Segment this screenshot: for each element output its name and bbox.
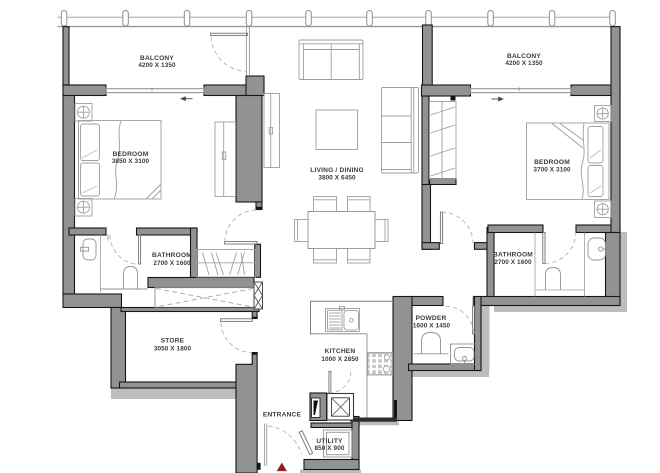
- svg-text:3850 X 3100: 3850 X 3100: [112, 158, 150, 165]
- svg-text:2700 X 1600: 2700 X 1600: [494, 259, 532, 266]
- svg-text:2700 X 1600: 2700 X 1600: [153, 260, 191, 267]
- svg-text:4200 X 1350: 4200 X 1350: [138, 62, 176, 69]
- svg-text:850 X 900: 850 X 900: [314, 445, 344, 452]
- svg-text:BATHROOM: BATHROOM: [152, 252, 192, 259]
- svg-text:BATHROOM: BATHROOM: [493, 251, 533, 258]
- svg-text:BALCONY: BALCONY: [140, 55, 174, 62]
- svg-text:ENTRANCE: ENTRANCE: [263, 411, 302, 418]
- svg-text:BEDROOM: BEDROOM: [534, 159, 570, 166]
- svg-text:KITCHEN: KITCHEN: [325, 348, 356, 355]
- svg-text:POWDER: POWDER: [416, 315, 447, 322]
- svg-text:UTILITY: UTILITY: [316, 438, 343, 445]
- svg-text:4200 X 1350: 4200 X 1350: [505, 60, 543, 67]
- svg-text:1000 X 2850: 1000 X 2850: [321, 356, 359, 363]
- svg-text:3800 X 6450: 3800 X 6450: [318, 175, 356, 182]
- svg-text:3700 X 3100: 3700 X 3100: [533, 167, 571, 174]
- svg-text:1600 X 1450: 1600 X 1450: [413, 322, 451, 329]
- svg-text:3050 X 1800: 3050 X 1800: [154, 346, 192, 353]
- svg-text:STORE: STORE: [161, 338, 185, 345]
- svg-text:BEDROOM: BEDROOM: [113, 151, 149, 158]
- svg-text:LIVING / DINING: LIVING / DINING: [310, 167, 364, 174]
